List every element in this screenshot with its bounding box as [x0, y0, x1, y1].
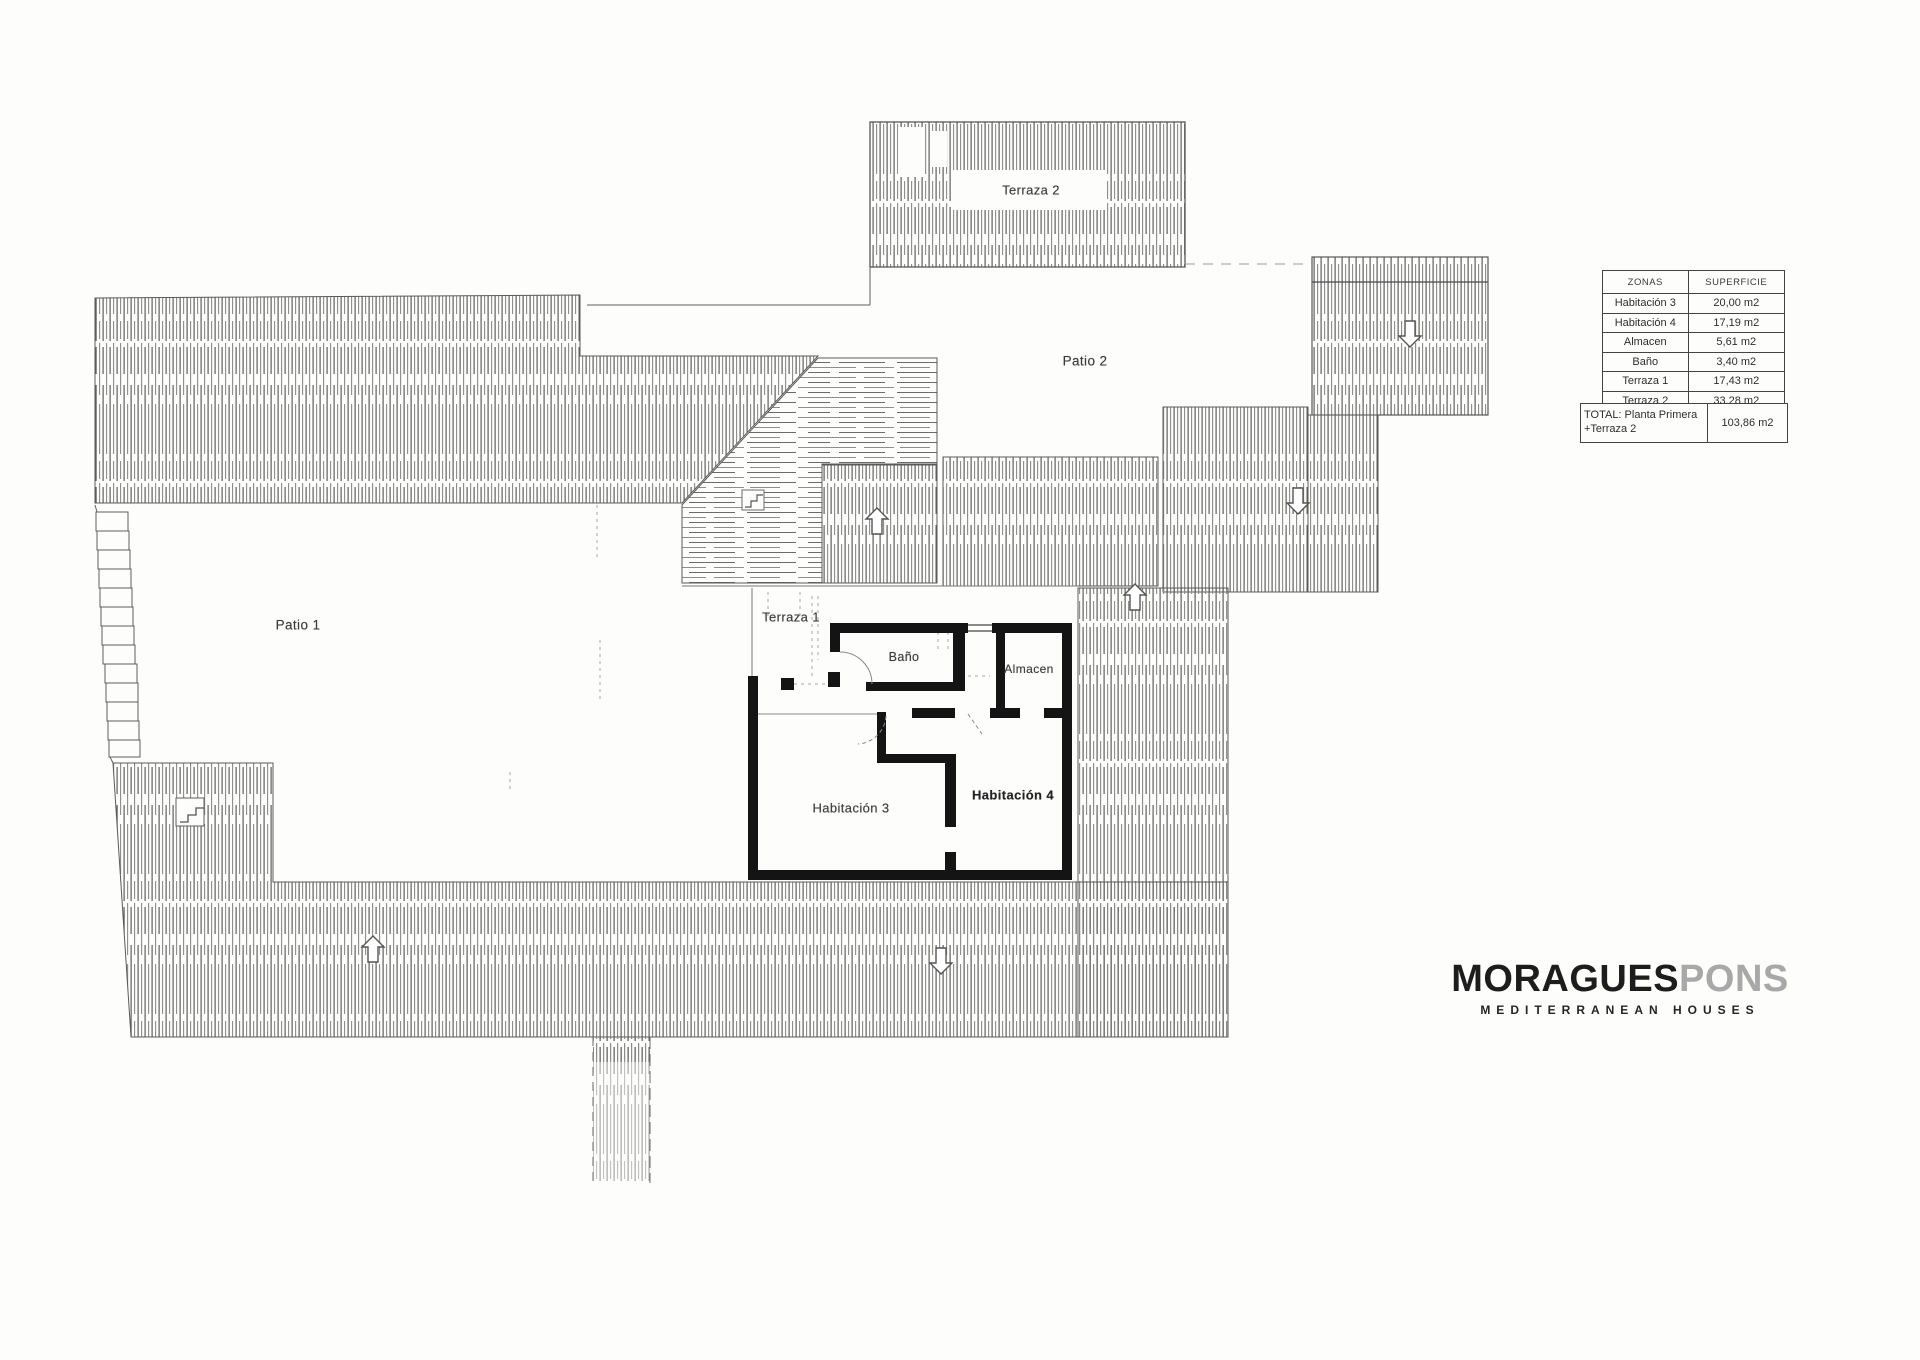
zone-cell: Baño: [1603, 352, 1689, 372]
label-patio-2: Patio 2: [1063, 354, 1108, 369]
roof-hatch-bottom-strip: [593, 1037, 650, 1183]
zone-cell: Almacen: [1603, 333, 1689, 353]
logo-wordmark: MORAGUESPONS: [1440, 960, 1800, 1000]
areas-table-header-area: SUPERFICIE: [1688, 271, 1784, 294]
stairs-strip: [95, 505, 140, 763]
label-terraza-2: Terraza 2: [1002, 183, 1060, 198]
window-symbol: [968, 622, 992, 634]
roof-hatch-right-middle-block: [1163, 407, 1378, 592]
total-area-cell: 103,86 m2: [1708, 404, 1787, 442]
floor-plan-sheet: Terraza 2 Patio 2 Patio 1 Terraza 1 Baño…: [0, 0, 1920, 1360]
roof-hatch-patio2-south-block: [943, 457, 1158, 586]
table-row: Baño 3,40 m2: [1603, 352, 1785, 372]
table-row: Habitación 4 17,19 m2: [1603, 313, 1785, 333]
company-logo: MORAGUESPONS MEDITERRANEAN HOUSES: [1440, 960, 1800, 1017]
area-cell: 17,43 m2: [1688, 372, 1784, 392]
areas-table: ZONAS SUPERFICIE Habitación 3 20,00 m2 H…: [1602, 270, 1785, 411]
zone-cell: Habitación 4: [1603, 313, 1689, 333]
roof-hatch-bottom-band: [113, 763, 1228, 1037]
logo-tagline: MEDITERRANEAN HOUSES: [1440, 1003, 1800, 1017]
label-almacen: Almacen: [1004, 662, 1054, 676]
areas-table-header-row: ZONAS SUPERFICIE: [1603, 271, 1785, 294]
table-row: Terraza 1 17,43 m2: [1603, 372, 1785, 392]
table-row: Habitación 3 20,00 m2: [1603, 294, 1785, 314]
label-terraza-1: Terraza 1: [762, 610, 820, 625]
areas-table-header-zone: ZONAS: [1603, 271, 1689, 294]
area-cell: 17,19 m2: [1688, 313, 1784, 333]
zone-cell: Habitación 3: [1603, 294, 1689, 314]
roof-hatch-upper-left-band: [95, 295, 818, 503]
table-row: Almacen 5,61 m2: [1603, 333, 1785, 353]
area-cell: 5,61 m2: [1688, 333, 1784, 353]
label-patio-1: Patio 1: [276, 618, 321, 633]
logo-name-primary: MORAGUES: [1451, 958, 1679, 1000]
label-habitacion-4: Habitación 4: [972, 788, 1054, 803]
areas-table-total-row: TOTAL: Planta Primera +Terraza 2 103,86 …: [1580, 403, 1788, 443]
label-habitacion-3: Habitación 3: [812, 801, 889, 816]
area-cell: 3,40 m2: [1688, 352, 1784, 372]
label-bano: Baño: [889, 650, 920, 664]
area-cell: 20,00 m2: [1688, 294, 1784, 314]
floor-plan-drawing: [0, 0, 1920, 1360]
logo-name-secondary: PONS: [1679, 958, 1789, 1000]
total-zone-cell: TOTAL: Planta Primera +Terraza 2: [1581, 404, 1708, 442]
zone-cell: Terraza 1: [1603, 372, 1689, 392]
